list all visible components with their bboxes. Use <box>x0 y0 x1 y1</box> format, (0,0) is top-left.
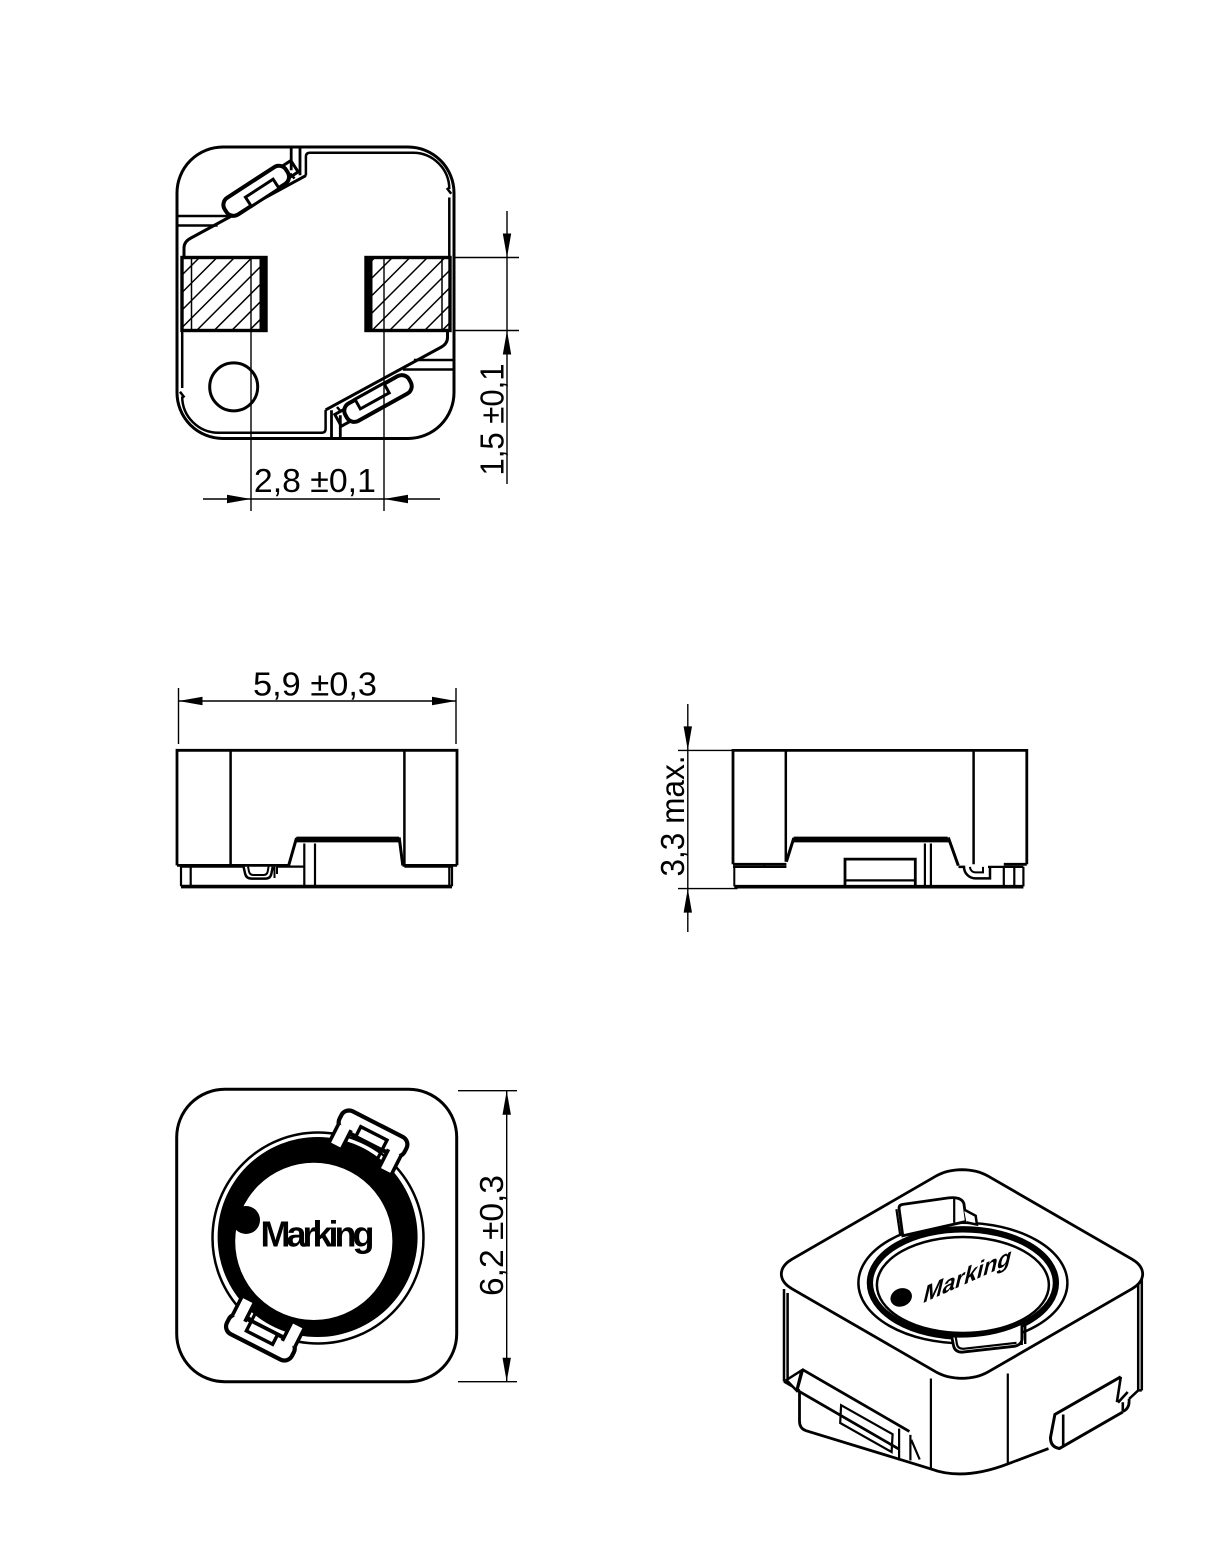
svg-text:2,8 ±0,1: 2,8 ±0,1 <box>254 462 376 499</box>
svg-text:3,3 max.: 3,3 max. <box>654 756 691 877</box>
svg-text:1,5 ±0,1: 1,5 ±0,1 <box>474 364 511 476</box>
svg-text:5,9 ±0,3: 5,9 ±0,3 <box>253 666 377 703</box>
svg-text:6,2 ±0,3: 6,2 ±0,3 <box>473 1175 510 1296</box>
svg-text:Marking: Marking <box>261 1214 375 1255</box>
